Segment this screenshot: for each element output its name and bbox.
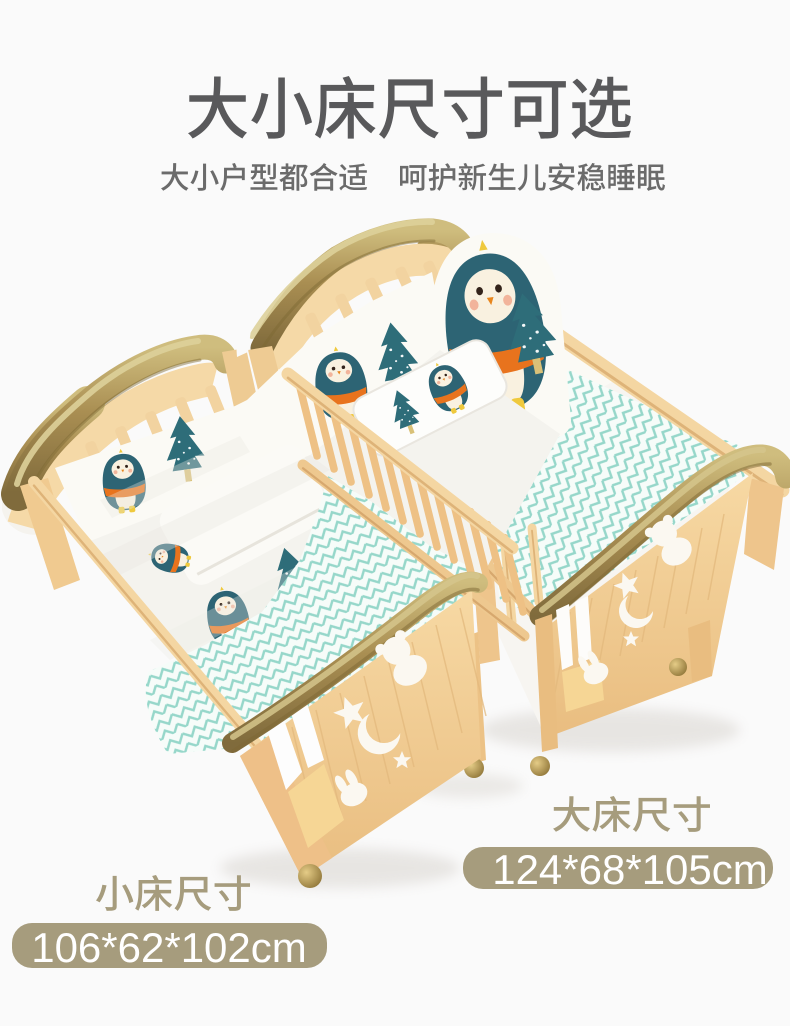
svg-text:124*68*105cm: 124*68*105cm [492,846,768,893]
svg-text:106*62*102cm: 106*62*102cm [31,924,307,971]
